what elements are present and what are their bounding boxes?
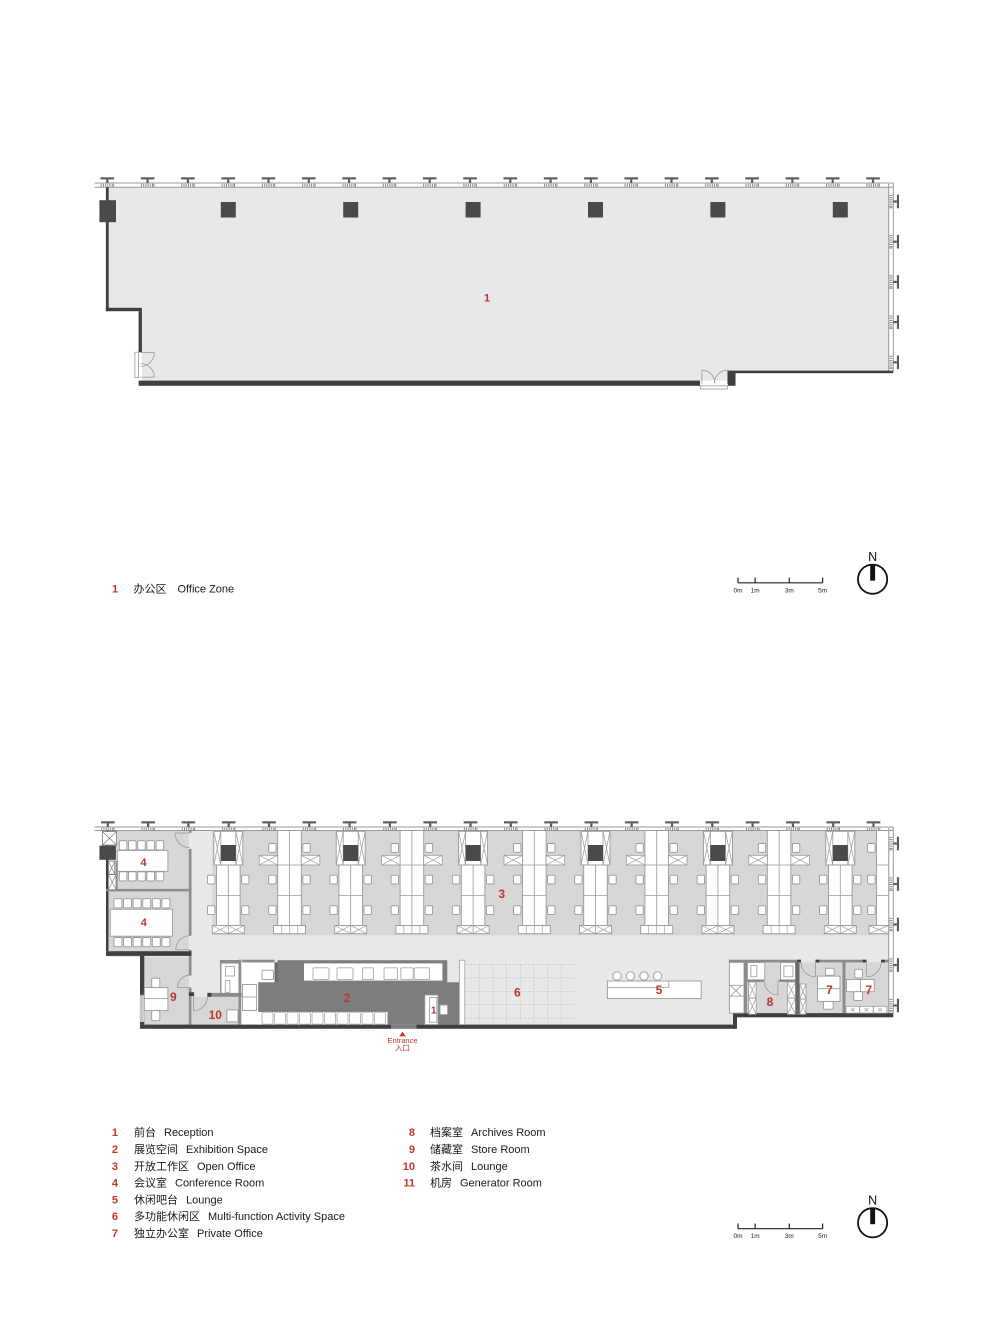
svg-text:Private Office: Private Office [197, 1228, 263, 1240]
svg-text:独立办公室: 独立办公室 [134, 1226, 189, 1240]
svg-text:3m: 3m [785, 587, 794, 594]
svg-text:4: 4 [140, 857, 147, 869]
svg-text:1: 1 [484, 293, 490, 305]
svg-text:5: 5 [112, 1194, 118, 1206]
svg-text:1: 1 [112, 584, 118, 596]
svg-text:Multi-function Activity Space: Multi-function Activity Space [208, 1211, 345, 1223]
svg-text:8: 8 [767, 995, 774, 1009]
svg-text:6: 6 [514, 986, 521, 1000]
svg-text:Reception: Reception [164, 1127, 214, 1139]
svg-text:会议室: 会议室 [134, 1176, 167, 1190]
svg-text:机房: 机房 [430, 1176, 452, 1190]
svg-text:1: 1 [431, 1006, 437, 1017]
svg-text:Store Room: Store Room [471, 1144, 530, 1156]
svg-text:展览空间: 展览空间 [134, 1142, 178, 1156]
svg-text:1m: 1m [751, 1233, 760, 1240]
svg-text:7: 7 [112, 1228, 118, 1240]
svg-text:3: 3 [498, 887, 505, 901]
svg-text:Archives Room: Archives Room [471, 1127, 546, 1139]
svg-text:5m: 5m [818, 587, 827, 594]
svg-text:Open Office: Open Office [197, 1161, 256, 1173]
svg-text:Exhibition Space: Exhibition Space [186, 1144, 268, 1156]
svg-text:储藏室: 储藏室 [430, 1142, 463, 1156]
svg-text:11: 11 [403, 1178, 415, 1190]
svg-text:8: 8 [409, 1127, 415, 1139]
svg-text:2: 2 [112, 1144, 118, 1156]
svg-text:Lounge: Lounge [471, 1161, 508, 1173]
svg-text:0m: 0m [733, 587, 742, 594]
svg-text:1m: 1m [751, 587, 760, 594]
svg-text:9: 9 [170, 990, 177, 1004]
svg-text:5: 5 [656, 983, 663, 997]
svg-text:休闲吧台: 休闲吧台 [134, 1192, 178, 1206]
svg-text:档案室: 档案室 [430, 1125, 463, 1139]
svg-text:Office Zone: Office Zone [178, 584, 235, 596]
svg-text:2: 2 [344, 991, 351, 1005]
svg-text:5m: 5m [818, 1233, 827, 1240]
svg-text:10: 10 [209, 1008, 223, 1022]
svg-text:入口: 入口 [395, 1044, 410, 1053]
svg-text:多功能休闲区: 多功能休闲区 [134, 1209, 200, 1223]
svg-text:办公区: 办公区 [134, 583, 167, 596]
svg-text:1: 1 [112, 1127, 118, 1139]
svg-text:N: N [868, 1194, 877, 1208]
svg-text:10: 10 [403, 1161, 415, 1173]
svg-text:6: 6 [112, 1211, 118, 1223]
svg-text:3m: 3m [785, 1233, 794, 1240]
svg-text:4: 4 [112, 1178, 119, 1190]
svg-text:0m: 0m [733, 1233, 742, 1240]
svg-text:前台: 前台 [134, 1125, 156, 1139]
svg-text:7: 7 [866, 983, 873, 997]
svg-text:4: 4 [141, 917, 148, 929]
svg-text:茶水间: 茶水间 [430, 1160, 463, 1173]
svg-text:9: 9 [409, 1144, 415, 1156]
svg-text:N: N [868, 550, 877, 564]
svg-text:7: 7 [826, 983, 833, 997]
svg-text:Lounge: Lounge [186, 1194, 223, 1206]
svg-text:开放工作区: 开放工作区 [134, 1159, 189, 1173]
svg-text:Conference Room: Conference Room [175, 1178, 264, 1190]
svg-text:3: 3 [112, 1161, 118, 1173]
svg-text:Generator Room: Generator Room [460, 1178, 542, 1190]
